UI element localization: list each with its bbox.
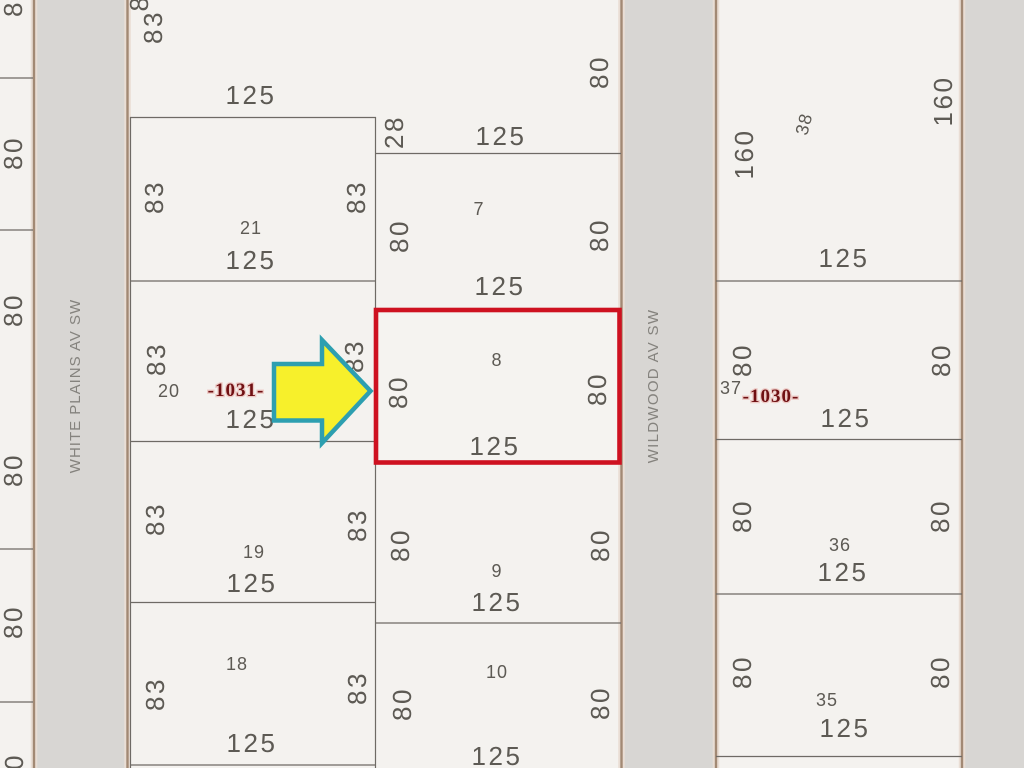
svg-text:80: 80 — [385, 528, 415, 562]
svg-text:80: 80 — [0, 0, 28, 17]
svg-text:80: 80 — [727, 655, 757, 689]
svg-text:83: 83 — [141, 342, 171, 376]
svg-text:8: 8 — [124, 0, 154, 11]
svg-text:9: 9 — [491, 561, 502, 581]
svg-text:80: 80 — [584, 55, 614, 89]
svg-text:35: 35 — [816, 690, 838, 710]
svg-text:80: 80 — [0, 136, 28, 170]
svg-text:80: 80 — [925, 655, 955, 689]
svg-text:83: 83 — [342, 508, 372, 542]
svg-text:125: 125 — [227, 728, 278, 758]
svg-text:21: 21 — [240, 218, 262, 238]
svg-text:18: 18 — [226, 654, 248, 674]
svg-text:125: 125 — [820, 713, 871, 743]
svg-text:36: 36 — [829, 535, 851, 555]
svg-text:83: 83 — [342, 671, 372, 705]
svg-text:83: 83 — [140, 677, 170, 711]
svg-text:80: 80 — [0, 605, 28, 639]
svg-text:125: 125 — [226, 80, 277, 110]
svg-text:80: 80 — [585, 528, 615, 562]
svg-text:80: 80 — [387, 687, 417, 721]
svg-text:125: 125 — [226, 404, 277, 434]
svg-text:125: 125 — [226, 245, 277, 275]
svg-text:80: 80 — [0, 753, 29, 768]
svg-text:8: 8 — [491, 350, 502, 370]
svg-text:125: 125 — [472, 741, 523, 768]
svg-text:19: 19 — [243, 542, 265, 562]
svg-text:80: 80 — [384, 219, 414, 253]
svg-text:125: 125 — [475, 271, 526, 301]
svg-text:10: 10 — [486, 662, 508, 682]
svg-text:83: 83 — [140, 502, 170, 536]
svg-text:80: 80 — [0, 293, 28, 327]
svg-text:80: 80 — [925, 499, 955, 533]
svg-text:125: 125 — [818, 557, 869, 587]
svg-text:83: 83 — [341, 180, 371, 214]
svg-text:-1030-: -1030- — [743, 386, 800, 407]
svg-text:80: 80 — [584, 218, 614, 252]
svg-text:125: 125 — [819, 243, 870, 273]
svg-text:20: 20 — [158, 381, 180, 401]
svg-text:83: 83 — [139, 180, 169, 214]
svg-text:125: 125 — [821, 403, 872, 433]
svg-text:125: 125 — [476, 121, 527, 151]
svg-text:28: 28 — [379, 115, 409, 149]
svg-text:WILDWOOD AV SW: WILDWOOD AV SW — [645, 309, 662, 464]
svg-text:80: 80 — [585, 686, 615, 720]
svg-text:80: 80 — [0, 453, 28, 487]
svg-text:125: 125 — [227, 568, 278, 598]
svg-text:37: 37 — [720, 378, 742, 398]
svg-text:80: 80 — [727, 343, 757, 377]
svg-text:125: 125 — [472, 587, 523, 617]
svg-text:80: 80 — [582, 372, 612, 406]
svg-text:160: 160 — [729, 129, 759, 180]
svg-text:83: 83 — [138, 10, 168, 44]
svg-text:-1031-: -1031- — [208, 380, 265, 401]
svg-text:160: 160 — [928, 76, 958, 127]
svg-text:80: 80 — [727, 499, 757, 533]
svg-text:80: 80 — [926, 343, 956, 377]
svg-text:7: 7 — [473, 199, 484, 219]
svg-text:125: 125 — [470, 431, 521, 461]
svg-text:WHITE PLAINS AV SW: WHITE PLAINS AV SW — [67, 299, 84, 473]
svg-text:80: 80 — [383, 375, 413, 409]
